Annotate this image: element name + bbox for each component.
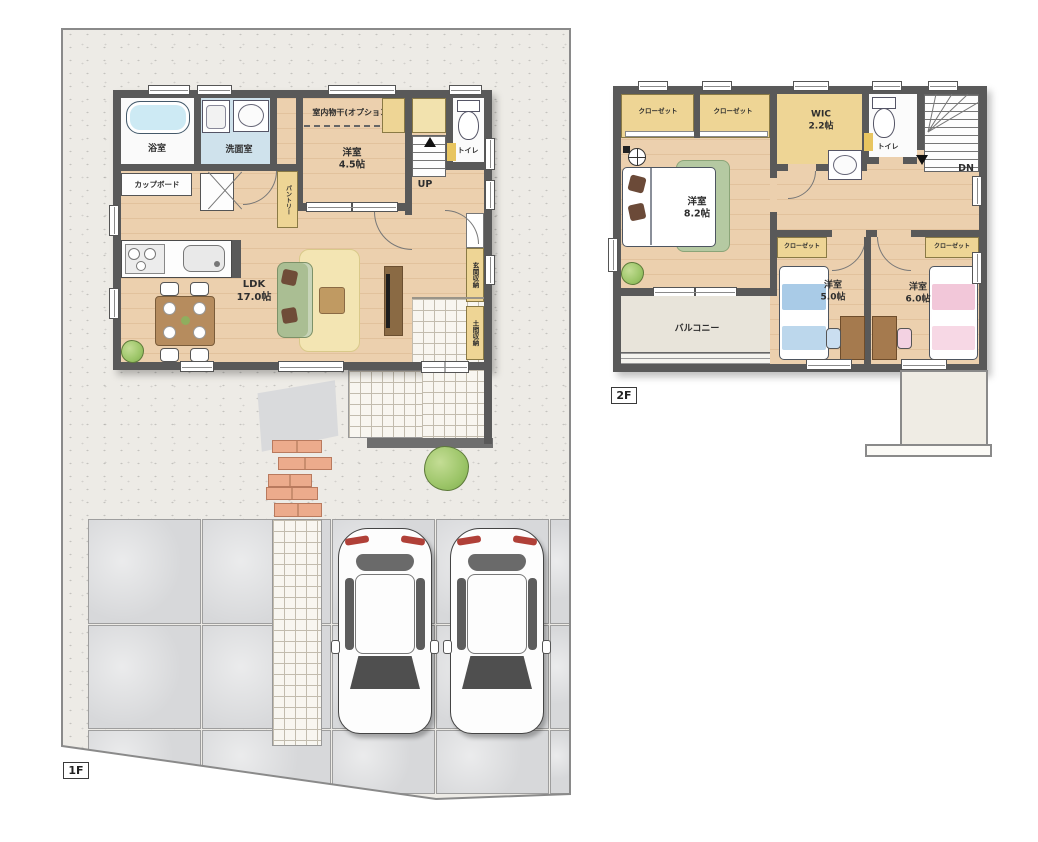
dining-chair	[160, 348, 179, 362]
window	[485, 180, 495, 210]
window	[278, 361, 344, 372]
desk-chair	[826, 328, 841, 349]
window	[328, 85, 396, 95]
window	[638, 81, 668, 91]
stove-burner	[144, 248, 156, 260]
stairs-up-label: UP	[418, 179, 433, 191]
bed-blanket	[782, 284, 826, 310]
room-bedroom45-label: 洋室 4.5帖	[339, 148, 365, 173]
window	[109, 205, 119, 236]
desk-chair	[897, 328, 912, 349]
door-gap	[788, 164, 816, 171]
faucet-icon	[214, 261, 220, 267]
doma-storage-label: 土間収納	[470, 320, 480, 346]
window	[197, 85, 232, 95]
room-size: 4.5帖	[339, 160, 365, 172]
room-name: 洋室	[906, 282, 931, 294]
sliding-door	[306, 202, 398, 212]
room-size: 6.0帖	[906, 294, 931, 306]
centerpiece	[181, 316, 190, 325]
room-bedroom50-label: 洋室 5.0帖	[821, 280, 846, 303]
sofa-pillow	[281, 269, 299, 287]
bathtub-icon	[126, 101, 190, 134]
sofa-pillow	[281, 307, 298, 324]
room-size: 2.2帖	[809, 121, 834, 133]
window	[972, 176, 982, 206]
pantry-label: パントリー	[284, 185, 293, 215]
window	[148, 85, 190, 95]
stove-burner	[136, 261, 146, 271]
room-size: 5.0帖	[821, 292, 846, 304]
toilet-mat	[864, 133, 873, 151]
balcony-railing	[621, 352, 770, 364]
floorplan-canvas: 浴室 洗面室 カップボード パントリー 室内物干(オプション) 洋室 4.5帖 …	[0, 0, 1038, 842]
room-size: 17.0帖	[237, 291, 272, 304]
wall	[694, 94, 700, 138]
wall	[121, 164, 303, 171]
plate	[163, 326, 176, 339]
toilet-mat	[447, 143, 456, 161]
stove-burner	[128, 248, 140, 260]
window	[485, 138, 495, 170]
window	[109, 288, 119, 319]
pillow	[628, 203, 647, 222]
entrance-door	[421, 361, 469, 373]
window	[793, 81, 829, 91]
dining-chair	[190, 348, 209, 362]
porch-tiles-inner	[422, 370, 484, 438]
door-gap	[770, 178, 777, 212]
desk	[840, 316, 865, 360]
room-balcony-label: バルコニー	[675, 324, 720, 336]
window	[702, 81, 732, 91]
indoor-drying-label: 室内物干(オプション)	[312, 108, 391, 118]
room-bedroom60-label: 洋室 6.0帖	[906, 282, 931, 305]
room-bath-label: 浴室	[148, 144, 166, 156]
counter-end-panel	[232, 240, 241, 278]
genkan-step-line	[412, 297, 484, 299]
window	[872, 81, 902, 91]
desk	[872, 316, 897, 360]
up-arrow-icon	[424, 137, 436, 147]
window	[608, 238, 618, 272]
stair-closet	[412, 98, 446, 133]
entrance-storage-label: 玄関収納	[470, 262, 480, 288]
roof-extension	[900, 370, 988, 446]
room-size: 8.2帖	[684, 209, 710, 221]
kitchen-sink-icon	[183, 245, 225, 272]
room-name: 洋室	[339, 148, 365, 160]
window	[449, 85, 482, 95]
room-name: 洋室	[821, 280, 846, 292]
closet	[382, 98, 405, 133]
room-name: 洋室	[684, 197, 710, 209]
room-ldk-label: LDK 17.0帖	[237, 278, 272, 304]
dining-chair	[190, 282, 209, 296]
ceiling-light-cross	[637, 148, 638, 166]
potted-plant	[621, 262, 644, 285]
room-washroom-label: 洗面室	[225, 145, 252, 157]
door-gap	[879, 157, 903, 164]
washbasin-bowl	[238, 104, 264, 127]
bed-blanket	[932, 284, 975, 310]
room-name: WIC	[809, 109, 834, 121]
room-toilet-1f-label: トイレ	[458, 146, 479, 155]
cupboard-label: カップボード	[135, 180, 180, 190]
roof-extension-step	[865, 444, 992, 457]
wall	[484, 362, 492, 444]
floor-tag-2f: 2F	[611, 387, 637, 404]
window	[806, 359, 852, 370]
coffee-table	[319, 287, 345, 314]
room-toilet-2f-label: トイレ	[878, 142, 899, 151]
wall	[864, 237, 871, 364]
floor-tag-1f: 1F	[63, 762, 89, 779]
bed-blanket	[932, 326, 975, 350]
tv-screen	[386, 274, 390, 328]
window	[972, 252, 982, 284]
refrigerator-icon	[200, 173, 234, 211]
window	[928, 81, 958, 91]
wall	[862, 94, 869, 164]
window	[180, 361, 214, 372]
room-wic-label: WIC 2.2帖	[809, 109, 834, 132]
toilet-bowl-icon	[458, 111, 479, 140]
ceiling-light-box	[623, 146, 630, 153]
washing-machine-drum	[206, 105, 226, 129]
wall	[917, 94, 924, 150]
bed-headboard-line	[650, 168, 652, 245]
bed-blanket	[782, 326, 826, 350]
hall-washbasin-bowl	[833, 155, 857, 175]
closet-label: クローゼット	[784, 243, 820, 251]
plate	[163, 302, 176, 315]
down-arrow-icon	[916, 155, 928, 165]
stairs-down-label: DN	[958, 163, 974, 175]
plate	[193, 326, 206, 339]
closet-label: クローゼット	[714, 107, 753, 115]
closet-label: クローゼット	[934, 243, 970, 251]
plate	[193, 302, 206, 315]
window	[485, 255, 495, 285]
wall	[194, 98, 201, 170]
room-bedroom82-label: 洋室 8.2帖	[684, 197, 710, 222]
door-gap	[832, 230, 866, 237]
room-name: LDK	[237, 278, 272, 291]
dining-chair	[160, 282, 179, 296]
door-gap	[877, 230, 911, 237]
potted-plant	[121, 340, 144, 363]
wall	[270, 98, 277, 164]
wall	[405, 98, 412, 215]
wall	[446, 162, 484, 170]
toilet-bowl-icon	[873, 108, 895, 138]
stair-fan-lines	[924, 94, 979, 134]
window	[901, 359, 947, 370]
closet-label: クローゼット	[639, 107, 678, 115]
